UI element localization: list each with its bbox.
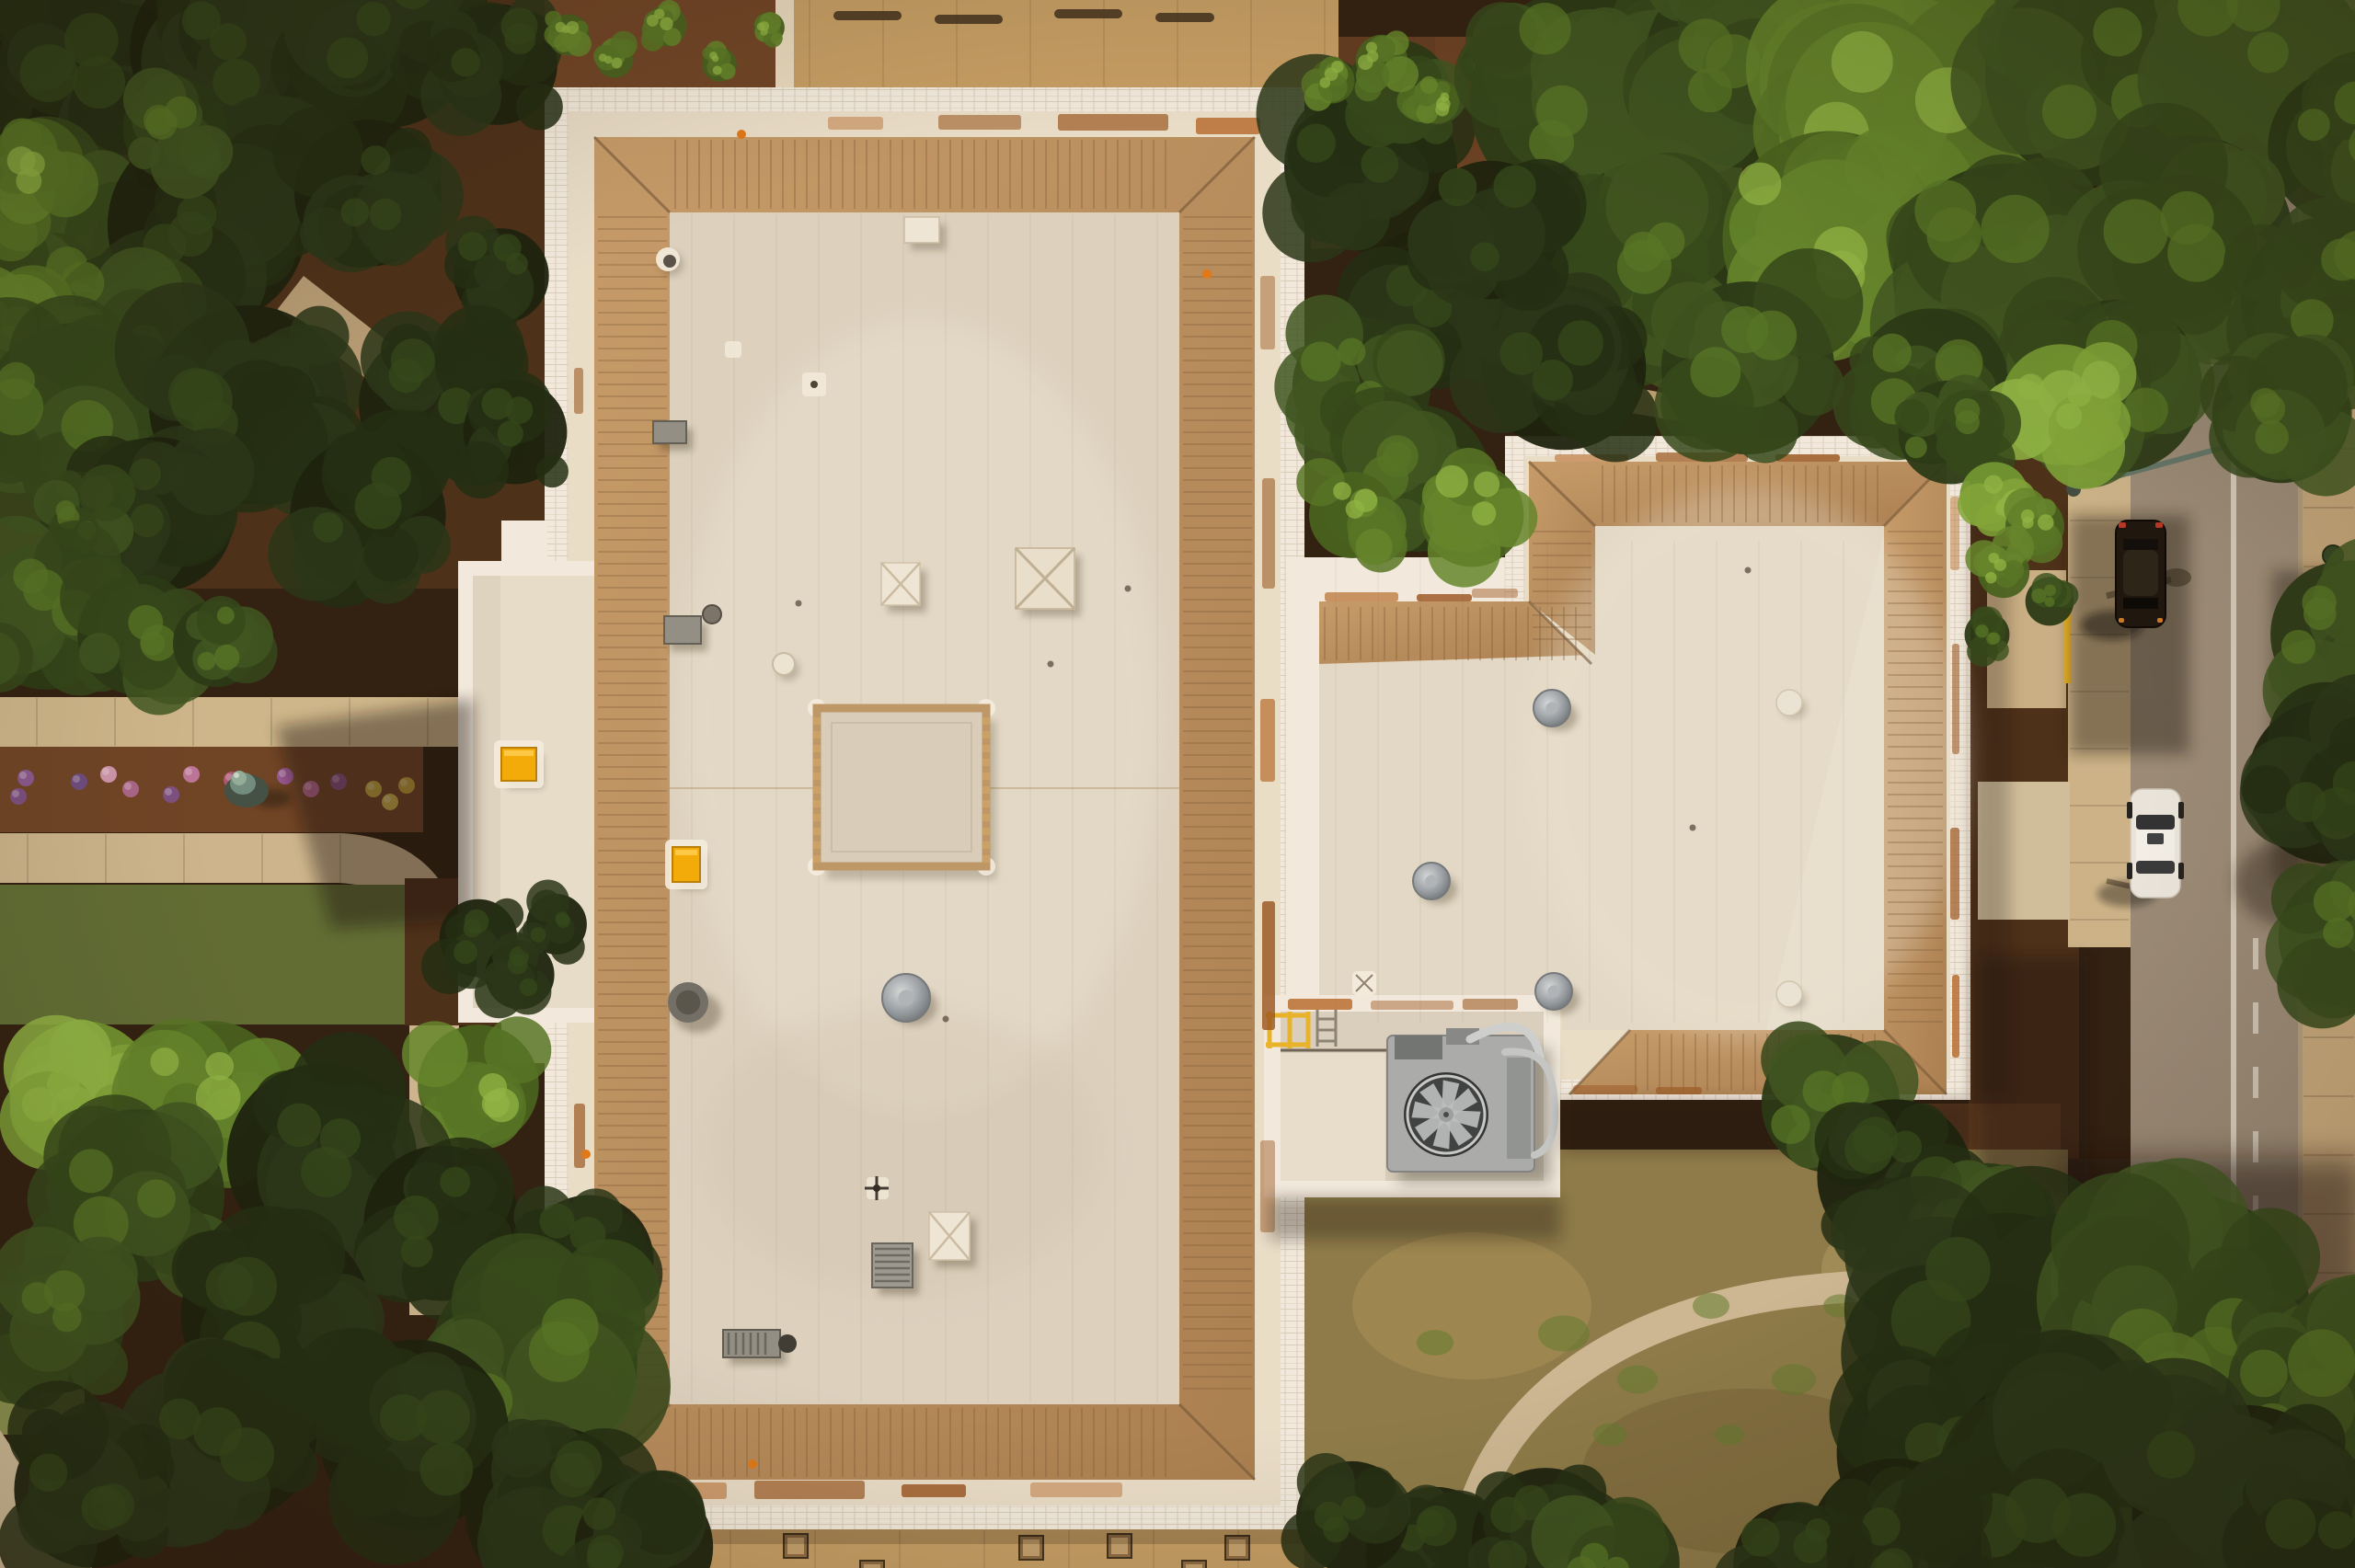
warm-grade [0, 0, 2355, 1568]
aerial-scene [0, 0, 2355, 1568]
aerial-photo-canvas [0, 0, 2355, 1568]
